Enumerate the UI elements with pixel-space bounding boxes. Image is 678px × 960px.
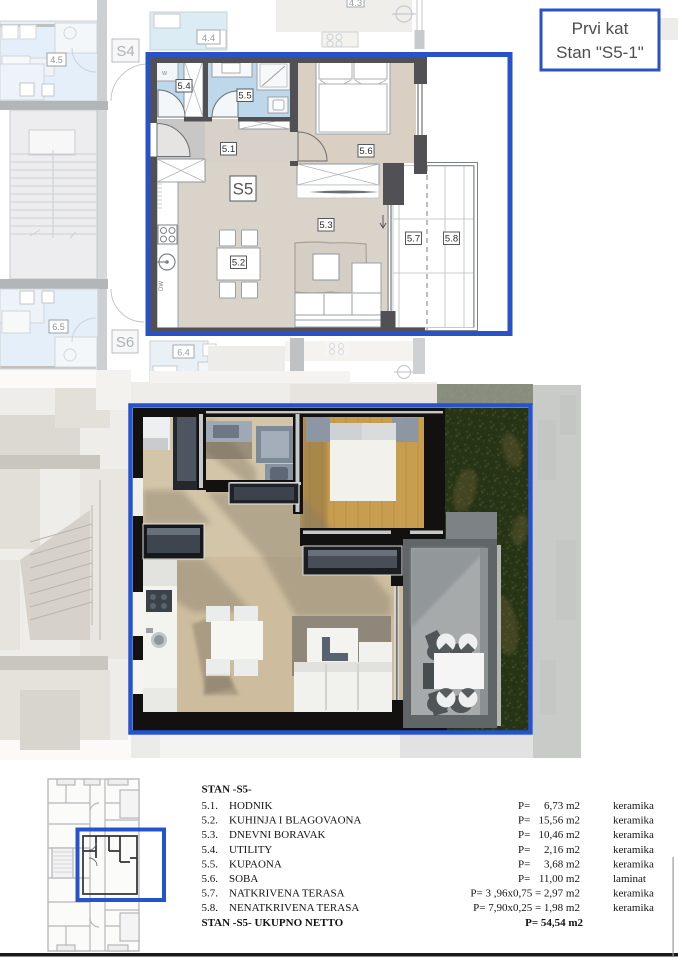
svg-text:5.3: 5.3 [319, 220, 332, 231]
svg-text:keramika: keramika [613, 858, 654, 870]
svg-text:keramika: keramika [613, 902, 654, 914]
svg-text:3,68 m2: 3,68 m2 [544, 858, 580, 870]
svg-text:5.1: 5.1 [222, 144, 235, 155]
svg-text:NATKRIVENA TERASA: NATKRIVENA TERASA [229, 888, 345, 900]
svg-text:Stan "S5-1": Stan "S5-1" [556, 43, 644, 62]
svg-text:P=: P= [518, 873, 530, 885]
svg-text:KUPAONA: KUPAONA [229, 858, 282, 870]
svg-text:5.6: 5.6 [359, 146, 372, 157]
svg-text:5.2.: 5.2. [202, 815, 219, 827]
svg-text:10,46 m2: 10,46 m2 [538, 829, 580, 841]
svg-text:P=: P= [518, 858, 530, 870]
svg-text:P= 3 ,96x0,75 = 2,97 m2: P= 3 ,96x0,75 = 2,97 m2 [470, 888, 580, 900]
svg-text:STAN -S5-: STAN -S5- [202, 784, 253, 796]
svg-text:NENATKRIVENA TERASA: NENATKRIVENA TERASA [229, 902, 359, 914]
svg-text:15,56 m2: 15,56 m2 [538, 815, 580, 827]
svg-text:HODNIK: HODNIK [229, 800, 272, 812]
svg-text:P= 7,90x0,25 = 1,98 m2: P= 7,90x0,25 = 1,98 m2 [473, 902, 580, 914]
svg-text:keramika: keramika [613, 815, 654, 827]
svg-text:keramika: keramika [613, 888, 654, 900]
svg-text:S5: S5 [233, 180, 254, 199]
svg-text:P=: P= [518, 844, 530, 856]
svg-text:5.3.: 5.3. [202, 829, 219, 841]
svg-text:STAN -S5- UKUPNO NETTO: STAN -S5- UKUPNO NETTO [202, 917, 344, 929]
svg-text:P=: P= [518, 829, 530, 841]
svg-text:SOBA: SOBA [229, 873, 258, 885]
svg-text:5.4: 5.4 [177, 81, 190, 92]
svg-text:5.2: 5.2 [232, 258, 245, 269]
svg-text:4.5: 4.5 [50, 55, 63, 65]
svg-text:S4: S4 [116, 43, 134, 60]
svg-text:DW: DW [159, 281, 165, 291]
svg-text:laminat: laminat [613, 873, 646, 885]
svg-text:5.5: 5.5 [238, 91, 251, 102]
svg-text:5.8: 5.8 [445, 234, 458, 245]
svg-text:5.7: 5.7 [407, 234, 420, 245]
svg-text:P= 54,54 m2: P= 54,54 m2 [525, 917, 583, 929]
svg-text:keramika: keramika [613, 800, 654, 812]
svg-text:11,00 m2: 11,00 m2 [539, 873, 580, 885]
svg-text:w: w [161, 70, 168, 77]
svg-text:Prvi kat: Prvi kat [572, 19, 629, 38]
svg-text:5.5.: 5.5. [202, 858, 219, 870]
svg-text:5.1.: 5.1. [202, 800, 219, 812]
svg-text:5.4.: 5.4. [202, 844, 219, 856]
svg-text:DNEVNI BORAVAK: DNEVNI BORAVAK [229, 829, 326, 841]
svg-text:6.4: 6.4 [177, 348, 190, 358]
svg-text:2,16 m2: 2,16 m2 [544, 844, 580, 856]
svg-text:6,73 m2: 6,73 m2 [544, 800, 580, 812]
svg-text:4.3: 4.3 [349, 0, 362, 9]
svg-text:6.5: 6.5 [52, 322, 65, 332]
svg-text:S6: S6 [116, 334, 134, 351]
svg-text:keramika: keramika [613, 829, 654, 841]
svg-text:P=: P= [518, 815, 530, 827]
svg-text:keramika: keramika [613, 844, 654, 856]
svg-text:P=: P= [518, 800, 530, 812]
svg-text:4.4: 4.4 [202, 33, 215, 44]
svg-text:KUHINJA I BLAGOVAONA: KUHINJA I BLAGOVAONA [229, 815, 361, 827]
svg-text:5.7.: 5.7. [202, 888, 219, 900]
svg-text:5.6.: 5.6. [202, 873, 219, 885]
svg-text:UTILITY: UTILITY [229, 844, 272, 856]
svg-text:5.8.: 5.8. [202, 902, 219, 914]
